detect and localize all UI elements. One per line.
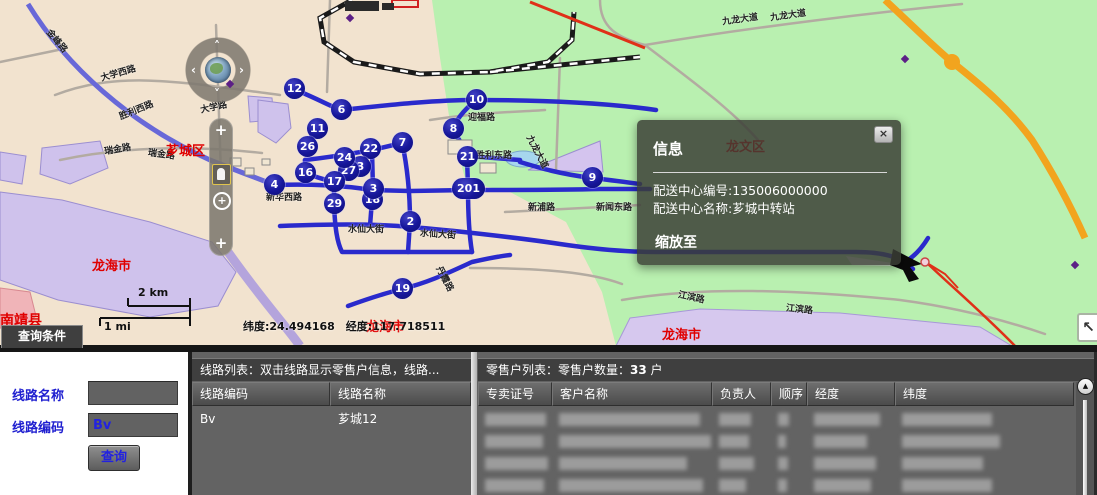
retailer-count-value: 33 xyxy=(630,363,647,377)
close-icon[interactable]: × xyxy=(874,126,893,143)
redacted-cell xyxy=(778,479,787,492)
redacted-cell xyxy=(485,413,546,426)
table-row-redacted[interactable] xyxy=(478,452,1076,474)
pan-right-icon[interactable]: › xyxy=(239,65,244,75)
delivery-route-gis-app: 金峰路大学西路大学路胜利西路瑞金路瑞金路新华西路水仙大街水仙大街丹霞路迎福路胜利… xyxy=(0,0,1097,495)
road-label: 新浦路 xyxy=(528,200,555,213)
redacted-cell xyxy=(559,413,700,426)
route-stop-marker-26[interactable]: 26 xyxy=(297,136,318,157)
table-row-redacted[interactable] xyxy=(478,408,1076,430)
route-name-label: 线路名称 xyxy=(12,385,64,404)
popup-center-name: 配送中心名称:芗城中转站 xyxy=(653,198,795,217)
redacted-cell xyxy=(485,435,543,448)
redacted-cell xyxy=(814,457,876,470)
popup-center-code: 配送中心编号:135006000000 xyxy=(653,180,828,199)
redacted-cell xyxy=(719,457,754,470)
route-name-input[interactable] xyxy=(88,381,178,405)
route-stop-marker-2[interactable]: 2 xyxy=(400,211,421,232)
redacted-cell xyxy=(559,435,711,448)
route-stop-marker-17[interactable]: 17 xyxy=(324,171,345,192)
column-header-3: 负责人 xyxy=(712,382,771,406)
route-stop-marker-10[interactable]: 10 xyxy=(466,89,487,110)
retailer-list-header: 零售户列表：零售户数量：33 户 xyxy=(478,358,1094,381)
region-label: 龙海市 xyxy=(662,324,701,343)
tab-query-conditions[interactable]: 查询条件 xyxy=(1,325,83,348)
road-label: 胜利东路 xyxy=(476,148,512,161)
hand-tool-button[interactable] xyxy=(212,164,231,185)
redacted-cell xyxy=(719,479,746,492)
route-stop-marker-12[interactable]: 12 xyxy=(284,78,305,99)
redacted-cell xyxy=(902,413,992,426)
column-header-2: 客户名称 xyxy=(552,382,712,406)
redacted-cell xyxy=(814,435,867,448)
column-header-5: 经度 xyxy=(807,382,895,406)
route-stop-marker-29[interactable]: 29 xyxy=(324,193,345,214)
road-label: 水仙大街 xyxy=(348,222,384,235)
road-label: 水仙大街 xyxy=(420,226,457,241)
redacted-cell xyxy=(778,435,786,448)
column-header-1: 线路编码 xyxy=(192,382,330,406)
table-row-redacted[interactable] xyxy=(478,474,1076,495)
hand-tool-icon xyxy=(217,168,225,180)
region-label: 龙海市 xyxy=(92,255,131,274)
column-header-2: 线路名称 xyxy=(330,382,471,406)
redacted-cell xyxy=(719,413,751,426)
redacted-cell xyxy=(778,413,789,426)
retailer-list-column-headers: 专卖证号客户名称负责人顺序经度纬度 xyxy=(478,382,1076,406)
retailer-count-prefix: 零售户列表：零售户数量： xyxy=(486,363,630,377)
zoom-out-icon[interactable]: + xyxy=(209,234,233,252)
column-header-4: 顺序 xyxy=(771,382,807,406)
map-zoom-slider: + + + xyxy=(209,118,233,256)
scrollbar-track[interactable] xyxy=(1083,400,1087,495)
route-stop-marker-201[interactable]: 201 xyxy=(452,178,485,199)
route-stop-marker-19[interactable]: 19 xyxy=(392,278,413,299)
road-label: 迎福路 xyxy=(468,110,495,123)
redacted-cell xyxy=(559,479,703,492)
panel-splitter-handle[interactable] xyxy=(471,346,477,495)
zoom-in-icon[interactable]: + xyxy=(209,121,233,139)
panel-separator xyxy=(0,345,1097,352)
expand-icon[interactable]: ↖ xyxy=(1077,313,1097,342)
scrollbar-up-icon[interactable]: ▲ xyxy=(1077,378,1094,395)
pan-down-icon[interactable]: ˅ xyxy=(214,89,220,99)
road-label: 江滨路 xyxy=(785,301,813,317)
redacted-cell xyxy=(814,479,871,492)
pan-left-icon[interactable]: ‹ xyxy=(191,65,196,75)
route-stop-marker-24[interactable]: 24 xyxy=(334,147,355,168)
scale-mi-label: 1 mi xyxy=(104,320,131,333)
globe-land xyxy=(210,63,223,74)
road-label: 新闻东路 xyxy=(596,200,632,213)
cursor-coordinates: 纬度:24.494168 经度:117.718511 xyxy=(243,318,445,334)
redacted-cell xyxy=(719,435,749,448)
route-stop-marker-3[interactable]: 3 xyxy=(363,178,384,199)
table-cell: Bv xyxy=(192,408,330,430)
redacted-cell xyxy=(902,479,992,492)
route-stop-marker-7[interactable]: 7 xyxy=(392,132,413,153)
route-code-input[interactable] xyxy=(88,413,178,437)
table-cell: 芗城12 xyxy=(330,408,471,430)
table-row[interactable]: Bv芗城12 xyxy=(192,408,471,430)
popup-title: 信息 xyxy=(653,138,683,159)
route-stop-marker-8[interactable]: 8 xyxy=(443,118,464,139)
redacted-cell xyxy=(814,413,880,426)
redacted-cell xyxy=(485,457,548,470)
redacted-cell xyxy=(485,479,544,492)
column-header-1: 专卖证号 xyxy=(478,382,552,406)
route-stop-marker-21[interactable]: 21 xyxy=(457,146,478,167)
column-header-6: 纬度 xyxy=(895,382,1074,406)
info-popup: 信息 × 配送中心编号:135006000000 配送中心名称:芗城中转站 缩放… xyxy=(637,120,901,265)
route-stop-marker-9[interactable]: 9 xyxy=(582,167,603,188)
map-scale-bar: 2 km 1 mi xyxy=(90,282,210,338)
popup-divider xyxy=(653,172,887,173)
destination-dot xyxy=(921,258,929,266)
zoom-extent-button[interactable]: + xyxy=(213,192,231,210)
redacted-cell xyxy=(902,457,983,470)
bottom-panels: 线路名称 线路编码 查询 线路列表：双击线路显示零售户信息，线路... 线路编码… xyxy=(0,346,1097,495)
map-canvas[interactable]: 金峰路大学西路大学路胜利西路瑞金路瑞金路新华西路水仙大街水仙大街丹霞路迎福路胜利… xyxy=(0,0,1097,346)
redacted-cell xyxy=(902,435,1000,448)
zoom-to-link[interactable]: 缩放至 xyxy=(655,232,697,252)
route-list-column-headers: 线路编码线路名称 xyxy=(192,382,471,406)
route-code-label: 线路编码 xyxy=(12,417,64,436)
globe-icon[interactable] xyxy=(205,57,231,83)
region-label: 芗城区 xyxy=(166,140,205,159)
route-stop-marker-4[interactable]: 4 xyxy=(264,174,285,195)
redacted-cell xyxy=(778,457,788,470)
route-stop-marker-6[interactable]: 6 xyxy=(331,99,352,120)
route-stop-marker-16[interactable]: 16 xyxy=(295,162,316,183)
table-row-redacted[interactable] xyxy=(478,430,1076,452)
map-pan-control: ˄ ˅ ‹ › xyxy=(185,37,251,105)
search-button[interactable]: 查询 xyxy=(88,445,140,471)
pan-up-icon[interactable]: ˄ xyxy=(214,41,220,51)
query-form-panel: 线路名称 线路编码 查询 xyxy=(0,352,188,495)
redacted-cell xyxy=(559,457,687,470)
retailer-count-suffix: 户 xyxy=(647,363,663,377)
route-list-header: 线路列表：双击线路显示零售户信息，线路... xyxy=(192,358,471,381)
